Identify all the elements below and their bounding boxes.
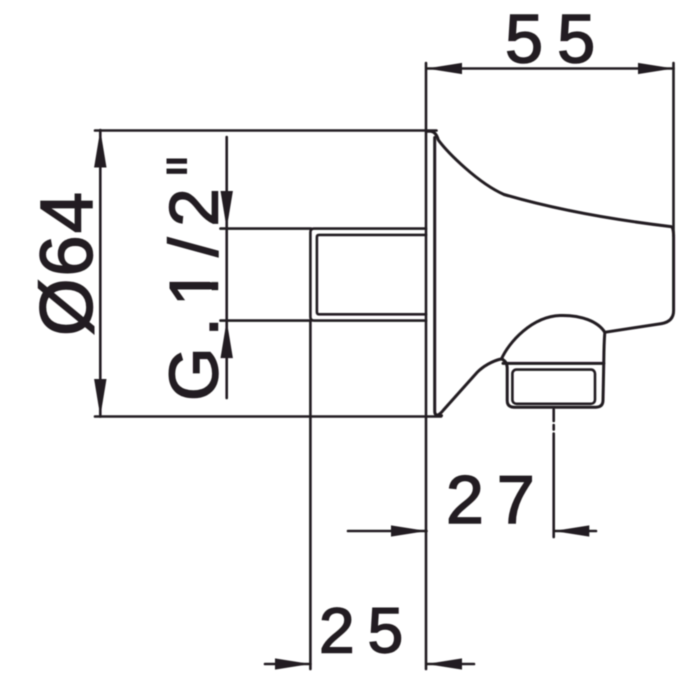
svg-text:25: 25 — [319, 595, 416, 667]
svg-text:55: 55 — [505, 1, 609, 78]
svg-text:Ø64: Ø64 — [25, 190, 108, 336]
svg-text:27: 27 — [446, 462, 548, 538]
svg-text:G.1/2: G.1/2 — [156, 177, 233, 401]
